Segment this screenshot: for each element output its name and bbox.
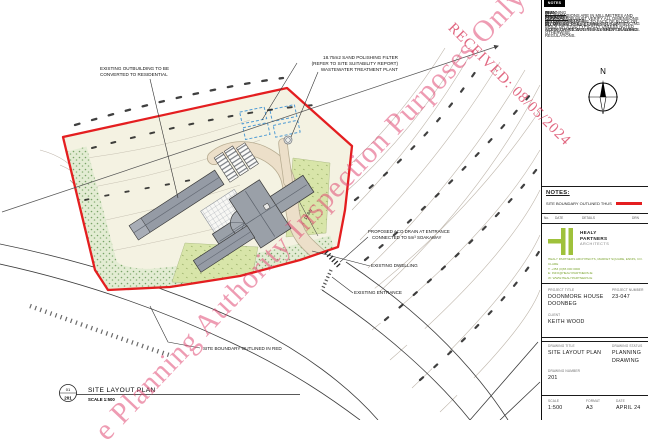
boundary-label: SITE BOUNDARY OUTLINED IN RED xyxy=(203,346,282,351)
legend-heading: NOTES: xyxy=(546,190,570,196)
existing-dwelling-label: EXISTING DWELLING xyxy=(371,263,418,268)
address-line: HEALY PARTNERS ARCHITECTS, MARKET SQUARE… xyxy=(548,257,644,267)
wastewater-treatment-plant xyxy=(284,136,292,144)
filter-label: 18.75m2 SAND POLISHING FILTER xyxy=(323,55,399,60)
divider-double xyxy=(542,337,648,342)
project-title-label: PROJECT TITLE xyxy=(548,288,574,292)
format-label: FORMAT xyxy=(586,399,600,403)
project-number-value: 23-047 xyxy=(612,294,630,300)
legend-boundary-note: SITE BOUNDARY OUTLINED THUS xyxy=(546,201,612,206)
divider xyxy=(542,395,648,396)
scale-label: SCALE xyxy=(548,399,559,403)
divider xyxy=(542,186,648,187)
aco-drain-label: PROPOSED ACO DRAIN AT ENTRANCE xyxy=(368,229,450,234)
boundary-red-swatch xyxy=(616,202,642,205)
project-title-value-2: DOONBEG xyxy=(548,301,577,307)
divider xyxy=(542,283,648,284)
rev-col-details: DETAILS xyxy=(582,216,595,220)
drawing-title-value: SITE LAYOUT PLAN xyxy=(548,350,601,356)
plan-scale-note: SCALE 1:500 xyxy=(88,397,115,402)
outbuilding-label: EXISTING OUTBUILDING TO BE xyxy=(100,66,169,71)
note-text: ALL WORKS TO BE CARRIED OUT IN ACCORDANC… xyxy=(545,22,645,38)
drawing-number-label: DRAWING NUMBER xyxy=(548,369,580,373)
firm-name-3: ARCHITECTS xyxy=(580,242,609,246)
general-notes-list: A. THIS DRAWING IS FOR PLANNING PURPOSES… xyxy=(545,10,645,25)
revision-strip: No. DATE DETAILS DRN xyxy=(542,213,648,224)
project-title-value: DOONMORE HOUSE xyxy=(548,294,604,300)
aco-drain-label-2: CONNECTED TO 5m³ SOAKAWAY xyxy=(372,235,442,240)
plan-title: SITE LAYOUT PLAN xyxy=(88,387,156,394)
drawing-number-value: 201 xyxy=(548,375,558,381)
firm-address: HEALY PARTNERS ARCHITECTS, MARKET SQUARE… xyxy=(548,257,644,281)
bubble-sheet: 201 xyxy=(64,396,72,401)
existing-entrance-label: EXISTING ENTRANCE xyxy=(354,290,402,295)
rev-col-no: No. xyxy=(544,216,549,220)
drawing-status-value: PLANNING xyxy=(612,350,641,356)
drawing-status-value-2: DRAWING xyxy=(612,358,639,364)
drawing-status-label: DRAWING STATUS xyxy=(612,344,642,348)
title-block-panel: NOTES A. THIS DRAWING IS FOR PLANNING PU… xyxy=(541,0,648,420)
firm-name-2: PARTNERS xyxy=(580,236,607,241)
project-number-label: PROJECT NUMBER xyxy=(612,288,644,292)
rev-col-date: DATE xyxy=(555,216,563,220)
client-label: CLIENT xyxy=(548,313,560,317)
filter-label-2: (REFER TO SITE SUITABILITY REPORT) xyxy=(312,61,399,66)
north-label: N xyxy=(600,67,606,76)
date-value: APRIL 24 xyxy=(616,405,640,411)
firm-name: HEALY xyxy=(580,230,597,235)
notes-header-tag: NOTES xyxy=(544,0,565,7)
rev-col-drn: DRN xyxy=(632,216,639,220)
north-arrow-icon: N xyxy=(582,64,624,120)
drawing-title-label: DRAWING TITLE xyxy=(548,344,575,348)
date-label: DATE xyxy=(616,399,625,403)
scale-value: 1:500 xyxy=(548,405,563,411)
address-line: W: WWW.HEALYPARTNERS.IE xyxy=(548,276,644,281)
bubble-number: 01 xyxy=(66,387,71,392)
format-value: A3 xyxy=(586,405,593,411)
outbuilding-label-2: CONVERTED TO RESIDENTIAL xyxy=(100,72,168,77)
client-value: KEITH WOOD xyxy=(548,319,585,325)
wwtp-label: WASTEWATER TREATMENT PLANT xyxy=(321,67,398,72)
architect-logo xyxy=(548,228,576,255)
site-plan-drawing: EXISTING OUTBUILDING TO BE CONVERTED TO … xyxy=(0,0,541,420)
